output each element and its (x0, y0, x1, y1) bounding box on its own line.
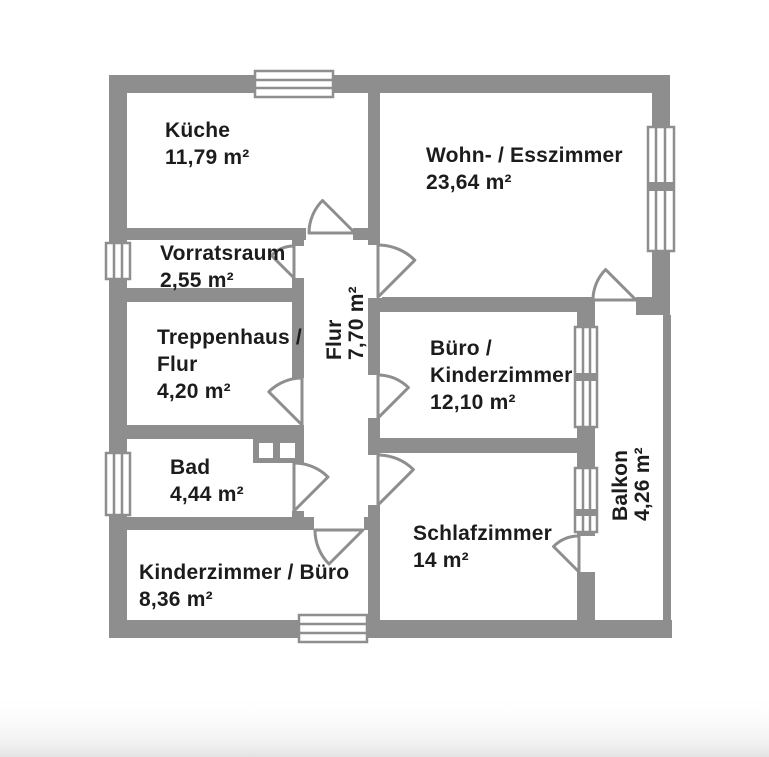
room-label-wohn-esszimmer: Wohn- / Esszimmer (426, 144, 623, 167)
wall-buero-bottom (380, 438, 577, 453)
wall-center-vertical (368, 93, 380, 620)
room-area-kinderzimmer-buero: 8,36 m² (139, 588, 213, 611)
window-vorratsraum-left (106, 243, 130, 279)
room-area-flur: 7,70 m² (345, 286, 368, 360)
room-area-vorratsraum: 2,55 m² (160, 269, 234, 292)
room-area-balkon: 4,26 m² (631, 447, 654, 521)
floorplan-page: Küche 11,79 m² Wohn- / Esszimmer 23,64 m… (0, 0, 769, 757)
room-area-schlafzimmer: 14 m² (413, 549, 469, 572)
room-label-treppenhaus-line1: Treppenhaus / (157, 326, 302, 349)
room-label-kinderzimmer-buero: Kinderzimmer / Büro (139, 561, 349, 584)
window-kueche-top (255, 71, 333, 97)
room-label-buero-line1: Büro / (430, 337, 492, 360)
wall-outer-left (109, 75, 127, 638)
wall-balcony-railing (663, 315, 671, 620)
window-bad-left (106, 453, 130, 515)
wall-outer-bottom (109, 620, 672, 638)
duct-shaft (253, 439, 304, 463)
wall-balcony-step (636, 297, 670, 315)
window-buero-balkon (575, 327, 597, 427)
shaft-cell (259, 443, 273, 458)
window-wohnzimmer-right (648, 127, 674, 251)
scan-artifact-band (0, 692, 769, 757)
room-label-vorratsraum: Vorratsraum (160, 242, 286, 265)
room-label-buero-line2: Kinderzimmer (430, 364, 572, 387)
room-label-flur: Flur (323, 320, 346, 360)
room-label-balkon: Balkon (609, 450, 632, 521)
room-label-treppenhaus-line2: Flur (157, 353, 197, 376)
floorplan-canvas: Küche 11,79 m² Wohn- / Esszimmer 23,64 m… (0, 0, 769, 757)
window-kinderzimmer-bottom (299, 615, 367, 642)
wall-treppenhaus-bottom (109, 425, 304, 439)
window-schlafzimmer-balkon (575, 468, 597, 532)
room-area-treppenhaus: 4,20 m² (157, 380, 231, 403)
room-area-wohn-esszimmer: 23,64 m² (426, 171, 512, 194)
wall-wohnzimmer-bottom (368, 297, 595, 312)
room-label-kueche: Küche (165, 119, 230, 142)
room-area-buero: 12,10 m² (430, 391, 516, 414)
shaft-cell (280, 443, 295, 458)
wall-outer-top (109, 75, 670, 93)
room-area-bad: 4,44 m² (170, 483, 244, 506)
room-area-kueche: 11,79 m² (165, 146, 250, 169)
room-label-bad: Bad (170, 456, 210, 479)
room-label-schlafzimmer: Schlafzimmer (413, 522, 552, 545)
